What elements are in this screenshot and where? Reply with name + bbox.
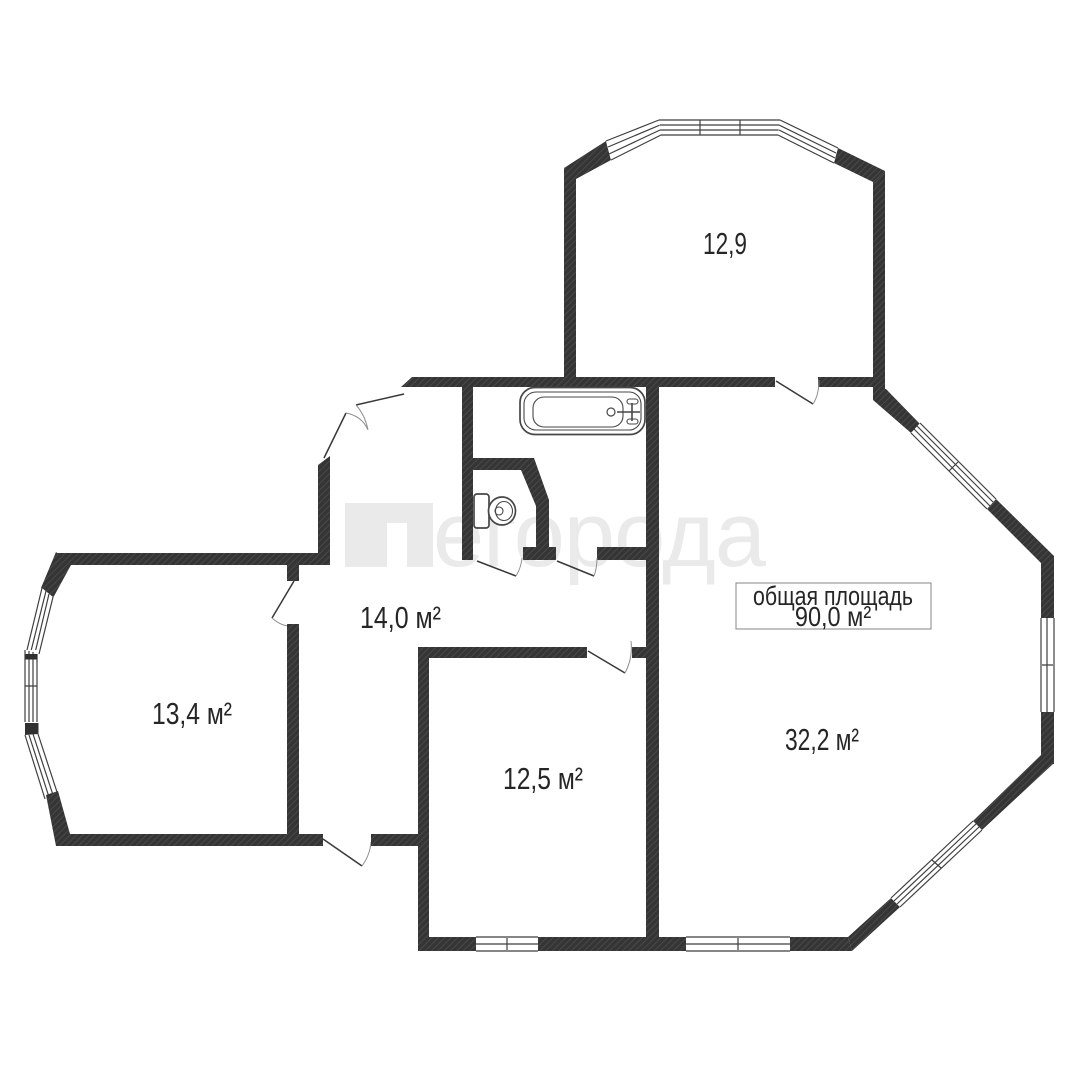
- svg-text:14,0 м²: 14,0 м²: [360, 600, 441, 635]
- svg-text:12,5 м²: 12,5 м²: [503, 761, 583, 796]
- svg-text:90,0 м²: 90,0 м²: [795, 602, 872, 632]
- svg-text:12,9: 12,9: [703, 226, 747, 261]
- svg-text:13,4 м²: 13,4 м²: [152, 696, 232, 731]
- svg-text:32,2 м²: 32,2 м²: [785, 722, 859, 757]
